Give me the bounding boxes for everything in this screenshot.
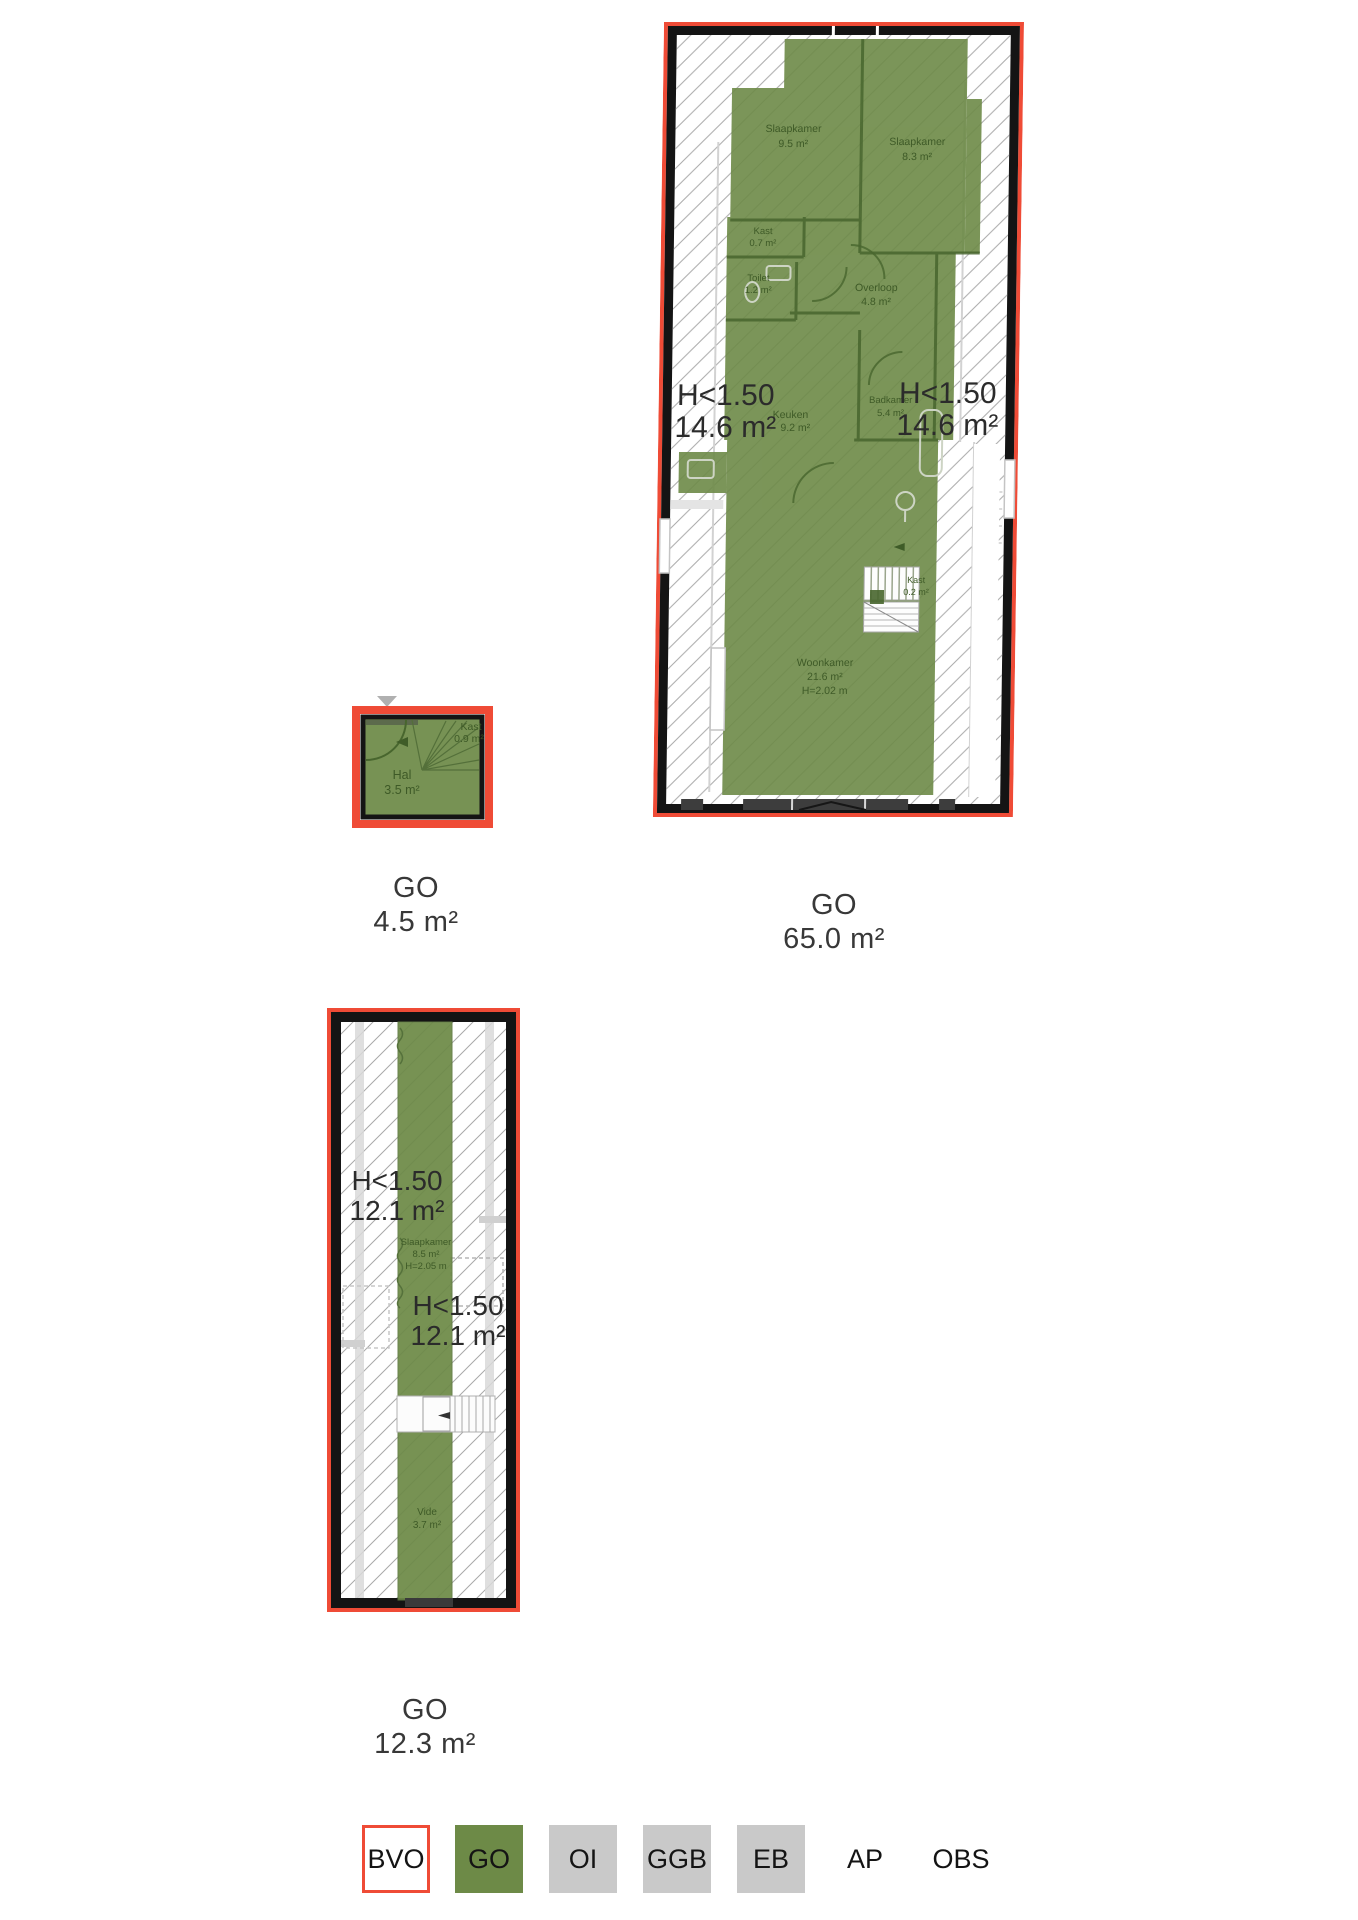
room-height-woonkamer: H=2.02 m [802,685,848,697]
low-height-label-left: H<1.50 [677,379,775,412]
room-area-vide: 3.7 m² [413,1520,442,1531]
go-label-hal: GO 4.5 m² [316,871,516,939]
floorplan-attic: H<1.50 12.1 m² H<1.50 12.1 m² Slaapkamer… [327,1008,520,1612]
room-label-kast1: Kast [753,226,773,237]
room-label-hal: Hal [393,768,412,782]
room-area-hal: 3.5 m² [384,783,419,797]
room-label-kast: Kast [460,721,481,733]
go-code: GO [316,871,516,905]
room-area-slaapkamer2: 8.3 m² [902,151,932,163]
room-label-keuken: Keuken [773,409,809,421]
room-label-toilet: Toilet [747,273,770,284]
legend-item-go: GO [455,1825,523,1893]
legend: BVO GO OI GGB EB AP OBS [0,1825,1358,1893]
go-area: 65.0 m² [734,922,934,956]
floorplan-upper: Slaapkamer 9.5 m² Slaapkamer 8.3 m² Kast… [653,22,1024,817]
floorplan-upper-svg: Slaapkamer 9.5 m² Slaapkamer 8.3 m² Kast… [653,22,1024,817]
room-area-toilet: 1.2 m² [745,285,772,296]
low-height-label-left: H<1.50 [351,1165,442,1196]
low-height-label-right: H<1.50 [412,1290,503,1321]
floorplan-hal: Kast 0.9 m² Hal 3.5 m² [352,706,493,828]
room-height-slaapkamer: H=2.05 m [405,1261,447,1272]
room-area-kast1: 0.7 m² [749,238,776,249]
room-label-slaapkamer1: Slaapkamer [765,123,822,135]
low-height-area-left: 12.1 m² [350,1195,445,1226]
low-height-area-right: 14.6 m² [896,409,998,442]
legend-item-oi: OI [549,1825,617,1893]
room-area-kast: 0.9 m² [454,733,484,745]
room-label-woonkamer: Woonkamer [797,657,854,669]
room-area-slaapkamer: 8.5 m² [413,1249,440,1260]
bottom-door-opening [405,1598,453,1607]
go-label-attic: GO 12.3 m² [325,1693,525,1761]
legend-item-bvo: BVO [362,1825,430,1893]
stairs-icon [397,1396,495,1432]
floorplan-hal-svg: Kast 0.9 m² Hal 3.5 m² [352,706,493,828]
go-label-upper: GO 65.0 m² [734,888,934,956]
legend-item-eb: EB [737,1825,805,1893]
gray-wall-stub [670,500,723,509]
floorplan-attic-svg: H<1.50 12.1 m² H<1.50 12.1 m² Slaapkamer… [327,1008,520,1612]
room-area-slaapkamer1: 9.5 m² [778,138,808,150]
room-area-overloop: 4.8 m² [861,296,891,308]
room-label-kast2: Kast [907,575,926,585]
go-area: 4.5 m² [316,905,516,939]
right-margin-strip [969,444,1000,797]
go-area: 12.3 m² [325,1727,525,1761]
room-label-slaapkamer: Slaapkamer [401,1237,452,1248]
room-label-slaapkamer2: Slaapkamer [889,136,946,148]
room-label-vide: Vide [417,1507,437,1518]
room-area-keuken: 9.2 m² [780,422,810,434]
low-height-area-right: 12.1 m² [411,1320,506,1351]
go-code: GO [734,888,934,922]
room-area-kast2: 0.2 m² [903,587,929,597]
low-height-area-left: 14.6 m² [674,411,776,444]
go-code: GO [325,1693,525,1727]
legend-item-obs: OBS [918,1825,1004,1893]
legend-item-ap: AP [836,1825,894,1893]
threshold-strip [366,720,418,725]
legend-item-ggb: GGB [643,1825,711,1893]
room-label-overloop: Overloop [855,282,898,294]
room-area-woonkamer: 21.6 m² [807,671,843,683]
low-height-label-right: H<1.50 [899,377,997,410]
floorplan-page: Slaapkamer 9.5 m² Slaapkamer 8.3 m² Kast… [0,0,1358,1920]
